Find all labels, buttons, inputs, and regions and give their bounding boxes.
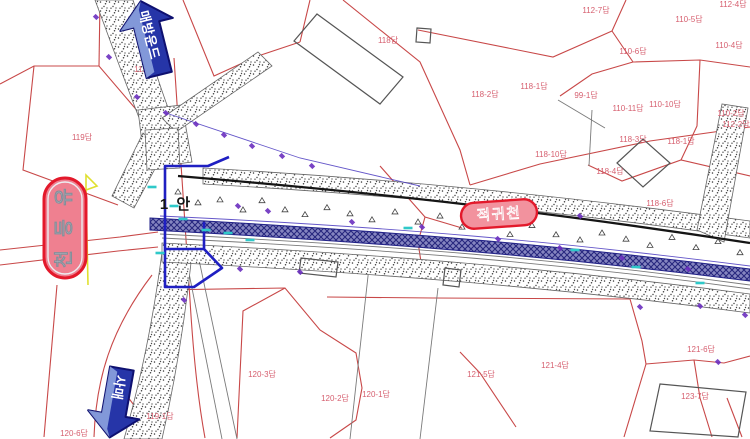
terrain-triangle-symbol — [437, 213, 443, 218]
terrain-triangle-symbol — [553, 232, 559, 237]
terrain-triangle-symbol — [507, 232, 513, 237]
parcel-label: 99-1답 — [574, 90, 598, 100]
parcel-label: 121-4답 — [541, 360, 569, 370]
survey-tick — [715, 359, 721, 365]
survey-tick — [265, 208, 271, 214]
parcel-label: 110-4답 — [715, 40, 743, 50]
terrain-triangle-symbol — [347, 211, 353, 216]
parcel-label: 110-6답 — [619, 46, 647, 56]
terrain-triangle-symbol — [737, 250, 743, 255]
parcel-label: 112-7답 — [582, 5, 610, 15]
level-mark — [632, 266, 641, 269]
parcel-label: 110-10답 — [649, 99, 681, 109]
level-mark — [156, 252, 165, 255]
survey-tick — [249, 143, 255, 149]
parcel-label: 120-3답 — [248, 369, 276, 379]
terrain-triangle-symbol — [175, 189, 181, 194]
badge-yudeungcheon: 유등천 — [44, 178, 86, 278]
terrain-triangle-symbol — [369, 217, 375, 222]
level-mark — [246, 239, 255, 242]
level-mark — [224, 232, 233, 235]
survey-tick — [237, 266, 243, 272]
parcel-label: 110-2답 — [717, 108, 745, 118]
survey-tick — [235, 203, 241, 209]
survey-tick — [637, 304, 643, 310]
parcel-label: 118-1답 — [520, 81, 548, 91]
parcel-label: 118-4답 — [596, 166, 624, 176]
survey-tick — [279, 153, 285, 159]
terrain-triangle-symbol — [599, 230, 605, 235]
parcel-label: 119-1답 — [146, 411, 174, 421]
terrain-triangle-symbol — [669, 234, 675, 239]
plan-alternative-label: 1 안 — [160, 195, 192, 213]
road-above-bridge — [145, 128, 180, 170]
badge-char: 천 — [53, 250, 75, 267]
parcel-label: 118-1답 — [667, 136, 695, 146]
survey-tick — [193, 121, 199, 127]
parcel-label: 118-2답 — [471, 89, 499, 99]
terrain-triangle-symbol — [693, 245, 699, 250]
badge-jeokgwicheon: 적귀천 — [460, 198, 538, 229]
parcel-label: 118-6답 — [646, 198, 674, 208]
cad-plan-canvas: 112-7답112-4답110-5답110-4답110-6답99-1답110-1… — [0, 0, 750, 439]
level-mark — [696, 282, 705, 285]
terrain-triangle-symbol — [259, 198, 265, 203]
road-branch-northeast — [162, 52, 272, 132]
terrain-triangle-symbol — [577, 237, 583, 242]
survey-tick — [309, 163, 315, 169]
terrain-triangle-symbol — [647, 242, 653, 247]
parcel-label: 112-4답 — [719, 0, 747, 9]
terrain-triangle-symbol — [282, 207, 288, 212]
parcel-label: 119답 — [72, 132, 93, 142]
road-south — [124, 252, 192, 439]
parcel-label: 118-10답 — [535, 149, 567, 159]
survey-tick — [93, 14, 99, 20]
parcel-label: 112-2답 — [722, 119, 750, 129]
terrain-triangle-symbol — [240, 207, 246, 212]
level-mark — [148, 186, 157, 189]
terrain-triangle-symbol — [302, 212, 308, 217]
terrain-triangle-symbol — [623, 236, 629, 241]
benchmark-flag — [86, 175, 97, 285]
survey-tick — [106, 54, 112, 60]
road-embankment-bands — [95, 0, 750, 439]
parcel-label: 110-11답 — [612, 103, 644, 113]
level-mark — [202, 229, 211, 232]
level-mark — [179, 218, 188, 221]
parcel-label: 121-6답 — [687, 344, 715, 354]
parcel-label: 118-3답 — [619, 134, 647, 144]
survey-tick — [349, 219, 355, 225]
parcel-label: 121-5답 — [467, 369, 495, 379]
parcel-label: 120-2답 — [321, 393, 349, 403]
parcel-label: 120-1답 — [362, 389, 390, 399]
terrain-triangle-symbol — [392, 209, 398, 214]
parcel-label: 110-5답 — [675, 14, 703, 24]
badge-char: 유 — [53, 188, 75, 205]
level-mark — [404, 227, 413, 230]
parcel-label: 118답 — [378, 35, 399, 45]
survey-tick — [419, 224, 425, 230]
badge-vertical-text: 유등천 — [53, 188, 75, 267]
parcel-label: 120-6답 — [60, 428, 88, 438]
badge-char: 등 — [53, 219, 75, 236]
terrain-triangle-symbol — [415, 219, 421, 224]
parcel-label: 123-7답 — [681, 391, 709, 401]
level-mark — [571, 249, 580, 252]
terrain-triangle-symbol — [195, 200, 201, 205]
terrain-triangle-symbol — [217, 197, 223, 202]
river-plan-drawing: 112-7답112-4답110-5답110-4답110-6답99-1답110-1… — [0, 0, 750, 439]
terrain-triangle-symbol — [324, 205, 330, 210]
